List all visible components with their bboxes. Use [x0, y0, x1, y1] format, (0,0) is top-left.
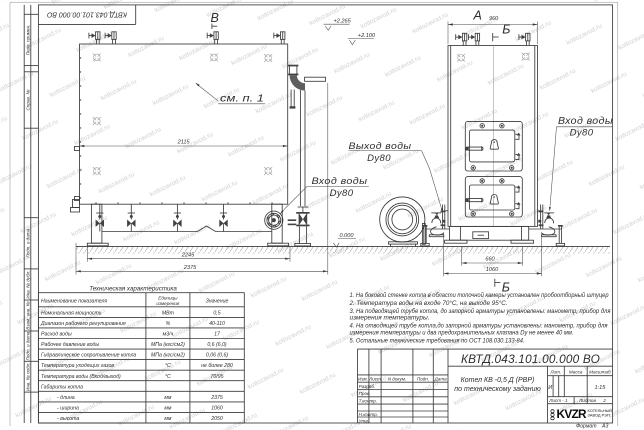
svg-text:Взам. инв. №: Взам. инв. №: [25, 301, 30, 329]
svg-text:Лист - 1: Лист - 1: [548, 398, 568, 403]
svg-text:Подп. и дата: Подп. и дата: [25, 228, 30, 257]
svg-text:мм: мм: [164, 416, 172, 422]
svg-text:КВТД.043.101.00.000 ВО: КВТД.043.101.00.000 ВО: [461, 352, 600, 366]
svg-text:Т.контр.: Т.контр.: [359, 399, 378, 404]
svg-text:960: 960: [489, 16, 498, 22]
svg-text:ЗАВОД РЭП: ЗАВОД РЭП: [588, 413, 610, 418]
svg-text:+2.100: +2.100: [358, 33, 376, 39]
svg-text:Масса: Масса: [569, 369, 583, 374]
svg-text:Формат: Формат: [576, 423, 597, 429]
svg-text:Номинальная мощность: Номинальная мощность: [41, 310, 102, 316]
svg-text:2115: 2115: [177, 140, 191, 146]
svg-text:мм: мм: [164, 406, 172, 412]
svg-text:И: И: [548, 385, 552, 391]
svg-text:Вход воды: Вход воды: [312, 176, 368, 187]
svg-text:Пров.: Пров.: [359, 391, 371, 396]
svg-text:мм: мм: [164, 395, 172, 401]
svg-text:Подп.: Подп.: [417, 376, 429, 381]
svg-text:2375: 2375: [210, 395, 223, 401]
svg-text:измерения температуры и два пр: измерения температуры и два предохраните…: [350, 329, 574, 336]
svg-text:Температура воды (Вход/выход): Температура воды (Вход/выход): [41, 374, 121, 380]
svg-text:70/95: 70/95: [211, 374, 224, 380]
svg-text:МПа (кгс/см2): МПа (кгс/см2): [151, 353, 185, 359]
svg-text:2050: 2050: [210, 416, 223, 422]
svg-text:Техническая характеристика: Техническая характеристика: [89, 286, 177, 293]
svg-text:см. п. 1: см. п. 1: [220, 94, 264, 105]
svg-text:Рабочее давление воды: Рабочее давление воды: [41, 342, 99, 348]
svg-text:Габариты котла: Габариты котла: [41, 384, 83, 390]
svg-text:Котел КВ -0,5 Д (РВР): Котел КВ -0,5 Д (РВР): [461, 377, 535, 384]
svg-text:0.000: 0.000: [340, 233, 355, 239]
svg-text:измерения: измерения: [156, 301, 180, 306]
svg-text:Расход воды: Расход воды: [41, 332, 72, 338]
svg-text:Диапазон рабочего регулировани: Диапазон рабочего регулирования: [40, 321, 126, 327]
svg-text:Масштаб: Масштаб: [589, 369, 611, 374]
svg-text:KVZR: KVZR: [557, 407, 587, 421]
svg-text:- длина: - длина: [57, 395, 75, 401]
svg-text:0,6 (6,0): 0,6 (6,0): [207, 342, 227, 348]
svg-text:1. На боковой стенке котла в: 1. На боковой стенке котла в области топ…: [350, 292, 610, 299]
svg-text:660: 660: [485, 257, 495, 263]
svg-text:0,5: 0,5: [213, 310, 220, 316]
svg-text:Значение: Значение: [206, 299, 229, 305]
svg-text:1060: 1060: [486, 267, 499, 273]
svg-text:1060: 1060: [211, 406, 223, 412]
svg-text:Разраб.: Разраб.: [359, 384, 376, 389]
svg-text:по техническому заданию: по техническому заданию: [454, 385, 541, 393]
svg-text:0,06 (0,6): 0,06 (0,6): [206, 353, 228, 359]
svg-text:- высота: - высота: [57, 416, 79, 422]
svg-text:Dy80: Dy80: [570, 127, 594, 138]
svg-text:2375: 2375: [183, 265, 197, 271]
svg-text:N докум.: N докум.: [388, 376, 407, 381]
svg-text:Dy80: Dy80: [367, 153, 391, 164]
svg-text:МВт: МВт: [162, 310, 175, 316]
svg-text:°С: °С: [165, 363, 171, 369]
svg-text:А: А: [473, 9, 482, 23]
svg-text:%: %: [166, 321, 171, 327]
svg-text:1:15: 1:15: [594, 385, 606, 391]
svg-text:5. Остальные технические треб: 5. Остальные технические требования по О…: [350, 337, 525, 344]
svg-text:Лит.: Лит.: [549, 369, 561, 374]
svg-text:Лист: Лист: [368, 376, 381, 381]
svg-text:измерения температуры.: измерения температуры.: [350, 315, 430, 322]
svg-text:Н.контр.: Н.контр.: [359, 412, 378, 417]
svg-text:Dy80: Dy80: [330, 188, 354, 199]
svg-text:Температура уходящих газов: Температура уходящих газов: [41, 363, 114, 369]
svg-text:Листов: Листов: [578, 398, 596, 403]
svg-text:А3: А3: [601, 423, 608, 429]
svg-text:2. Температура воды на входе: 2. Температура воды на входе 70°С, на вы…: [348, 300, 507, 307]
svg-text:Инв. № дубл.: Инв. № дубл.: [25, 270, 30, 298]
svg-text:Справ. №: Справ. №: [25, 90, 30, 111]
svg-text:40-110: 40-110: [209, 321, 225, 327]
svg-text:МПа (кгс/см2): МПа (кгс/см2): [151, 342, 185, 348]
svg-text:Единицы: Единицы: [158, 296, 178, 301]
svg-text:м3/ч: м3/ч: [163, 332, 174, 338]
svg-text:Гидравлическое сопротивление к: Гидравлическое сопротивление котла: [41, 353, 136, 359]
svg-text:°С: °С: [165, 374, 171, 380]
svg-text:Наименование показателя: Наименование показателя: [41, 299, 107, 305]
svg-text:2: 2: [602, 398, 606, 403]
svg-text:Перв. примен.: Перв. примен.: [25, 25, 30, 56]
svg-text:Изм.: Изм.: [358, 376, 368, 381]
svg-text:не более 280: не более 280: [201, 363, 233, 369]
svg-text:Вход воды: Вход воды: [558, 116, 613, 127]
svg-text:Инв. № подл.: Инв. № подл.: [25, 362, 30, 391]
svg-text:Дата: Дата: [434, 376, 448, 381]
svg-text:В: В: [211, 11, 219, 25]
svg-text:Утв.: Утв.: [359, 418, 369, 423]
svg-text:КВТД.043.101.00.000 ВО: КВТД.043.101.00.000 ВО: [47, 11, 127, 18]
svg-text:Подп. и дата: Подп. и дата: [25, 331, 30, 360]
svg-text:+2.265: +2.265: [334, 19, 352, 25]
svg-text:- ширина: - ширина: [57, 406, 79, 412]
